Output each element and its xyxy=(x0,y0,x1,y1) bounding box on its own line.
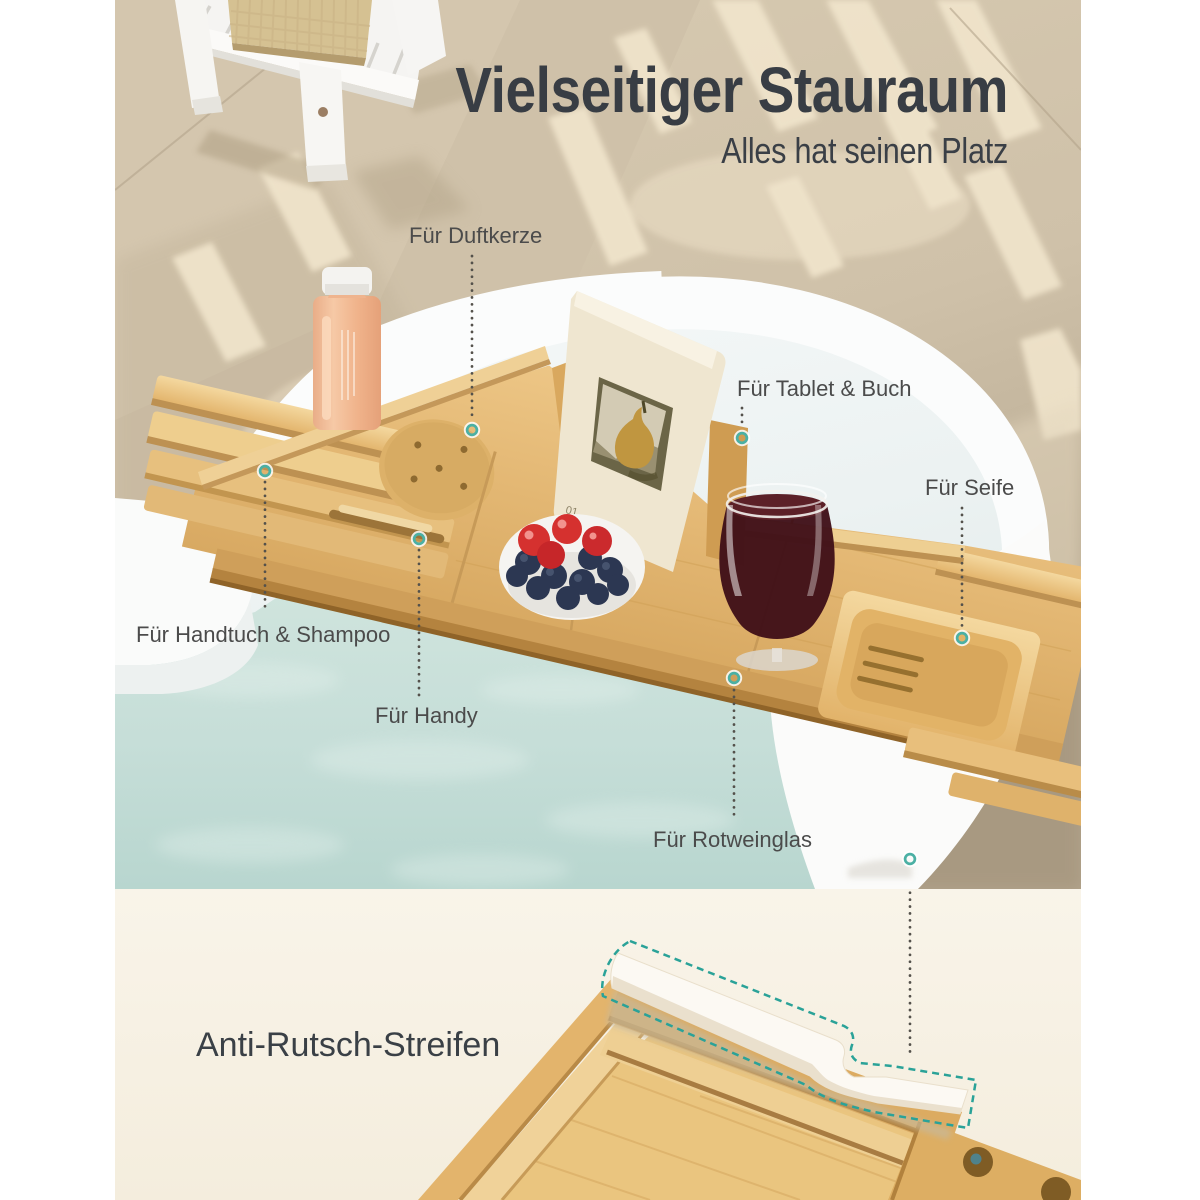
svg-text:Anti-Rutsch-Streifen: Anti-Rutsch-Streifen xyxy=(196,1026,500,1064)
svg-text:Alles hat seinen Platz: Alles hat seinen Platz xyxy=(721,132,1008,172)
svg-text:Für Rotweinglas: Für Rotweinglas xyxy=(653,827,812,852)
svg-text:Vielseitiger Stauraum: Vielseitiger Stauraum xyxy=(455,54,1008,126)
svg-text:Für Handtuch & Shampoo: Für Handtuch & Shampoo xyxy=(136,622,390,647)
svg-text:Für Seife: Für Seife xyxy=(925,475,1014,500)
svg-text:Für Duftkerze: Für Duftkerze xyxy=(409,223,542,248)
svg-text:Für Tablet & Buch: Für Tablet & Buch xyxy=(737,376,911,401)
svg-text:Für Handy: Für Handy xyxy=(375,703,478,728)
